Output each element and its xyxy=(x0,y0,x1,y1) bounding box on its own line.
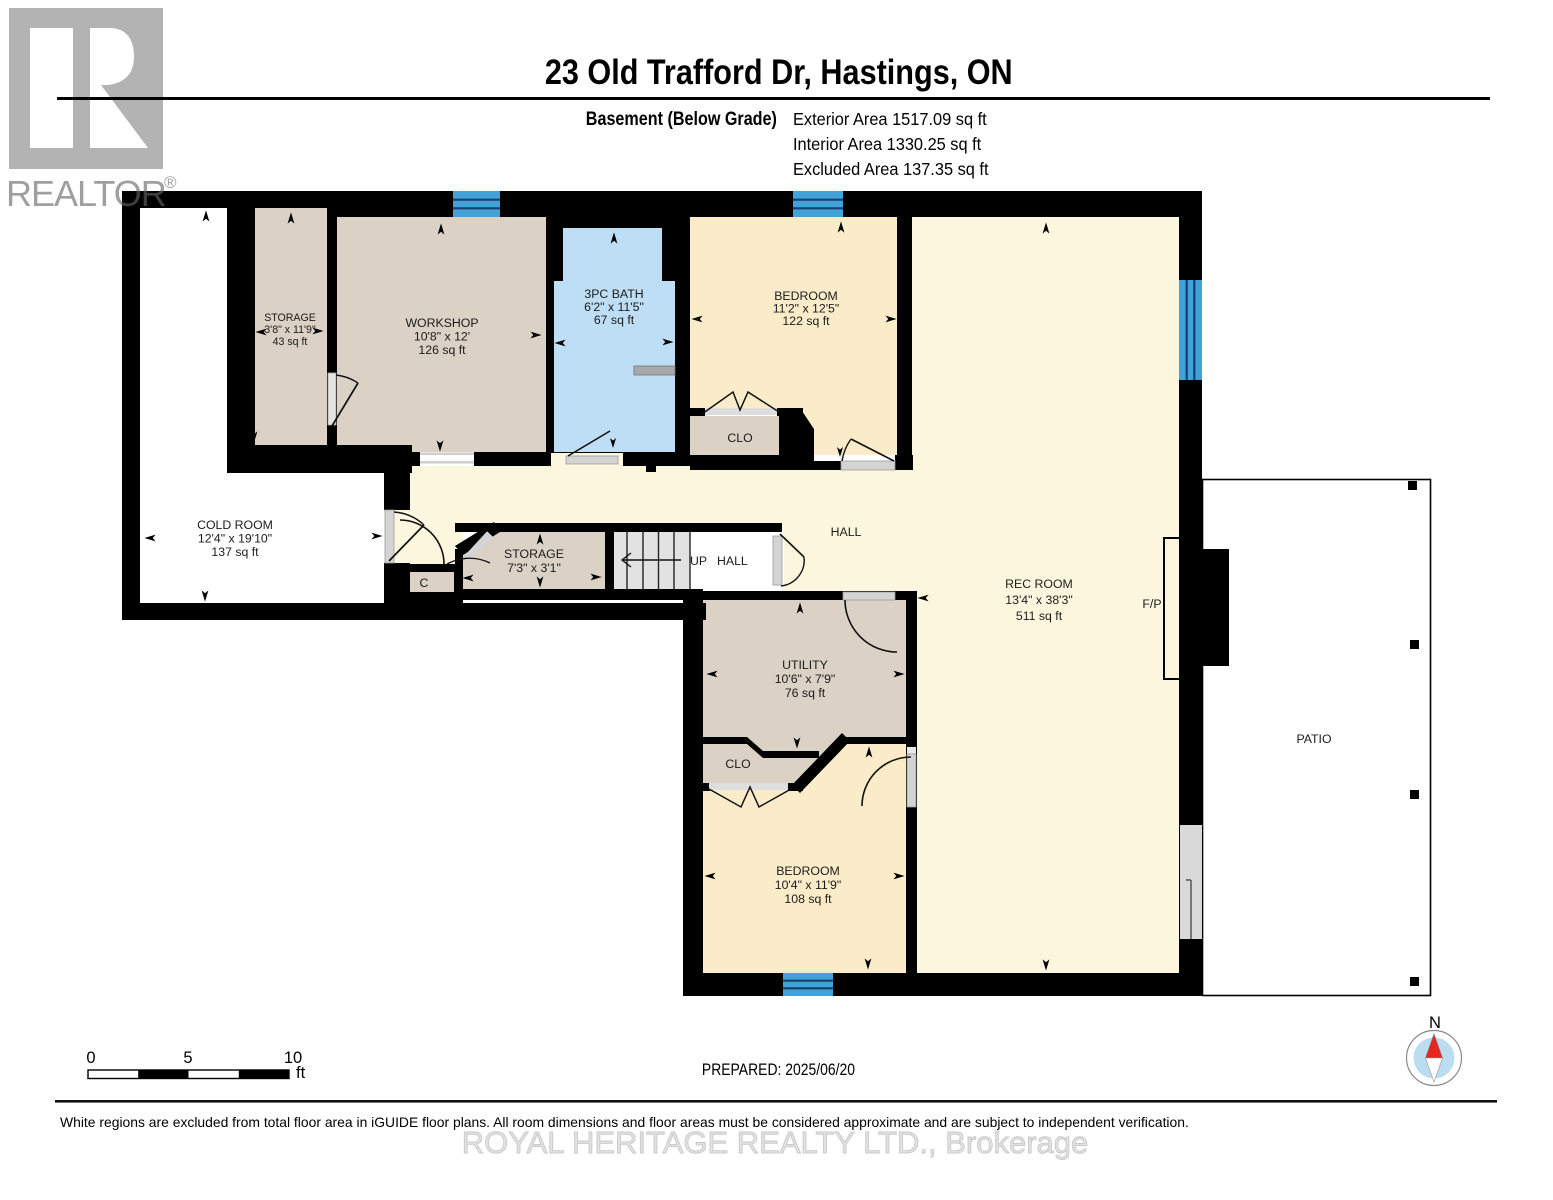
svg-text:3PC BATH: 3PC BATH xyxy=(584,287,643,301)
svg-text:UP: UP xyxy=(690,554,707,568)
svg-text:BEDROOM: BEDROOM xyxy=(776,864,840,878)
svg-text:PREPARED: 2025/06/20: PREPARED: 2025/06/20 xyxy=(702,1061,855,1080)
svg-text:N: N xyxy=(1429,1014,1441,1032)
svg-text:10'8" x 12': 10'8" x 12' xyxy=(414,330,470,344)
svg-text:WORKSHOP: WORKSHOP xyxy=(405,316,478,330)
svg-text:137 sq ft: 137 sq ft xyxy=(211,545,259,559)
svg-text:HALL: HALL xyxy=(717,554,748,568)
svg-text:STORAGE: STORAGE xyxy=(264,312,316,324)
svg-text:122 sq ft: 122 sq ft xyxy=(782,314,830,328)
svg-text:PATIO: PATIO xyxy=(1296,732,1331,746)
svg-text:®: ® xyxy=(164,173,177,192)
svg-text:CLO: CLO xyxy=(725,757,750,771)
svg-text:511 sq ft: 511 sq ft xyxy=(1016,609,1063,623)
svg-text:67 sq ft: 67 sq ft xyxy=(594,313,635,327)
svg-text:STORAGE: STORAGE xyxy=(504,547,564,561)
svg-text:0: 0 xyxy=(86,1049,95,1067)
svg-text:HALL: HALL xyxy=(831,525,862,539)
svg-text:COLD ROOM: COLD ROOM xyxy=(197,518,273,532)
svg-text:3'8" x 11'9": 3'8" x 11'9" xyxy=(264,324,316,336)
svg-text:Exterior Area 1517.09 sq ft: Exterior Area 1517.09 sq ft xyxy=(793,108,987,129)
svg-text:6'2" x 11'5": 6'2" x 11'5" xyxy=(584,300,644,314)
svg-text:5: 5 xyxy=(183,1049,192,1067)
svg-text:REALTOR: REALTOR xyxy=(6,173,166,214)
svg-text:76 sq ft: 76 sq ft xyxy=(785,686,826,700)
svg-text:43 sq ft: 43 sq ft xyxy=(273,336,308,348)
svg-text:REC ROOM: REC ROOM xyxy=(1005,577,1073,591)
svg-text:CLO: CLO xyxy=(727,431,752,445)
svg-text:126 sq ft: 126 sq ft xyxy=(418,343,466,357)
svg-text:F/P: F/P xyxy=(1142,597,1161,611)
svg-text:UTILITY: UTILITY xyxy=(782,658,828,672)
svg-text:Basement (Below Grade): Basement (Below Grade) xyxy=(586,108,777,130)
svg-text:12'4" x 19'10": 12'4" x 19'10" xyxy=(198,532,272,546)
svg-text:C: C xyxy=(420,576,429,590)
svg-text:108 sq ft: 108 sq ft xyxy=(784,892,832,906)
svg-text:ROYAL HERITAGE REALTY LTD., Br: ROYAL HERITAGE REALTY LTD., Brokerage xyxy=(462,1125,1089,1160)
svg-text:Excluded Area 137.35 sq ft: Excluded Area 137.35 sq ft xyxy=(793,158,989,179)
svg-text:23 Old Trafford Dr, Hastings,: 23 Old Trafford Dr, Hastings, ON xyxy=(545,52,1013,91)
svg-text:Interior Area 1330.25 sq ft: Interior Area 1330.25 sq ft xyxy=(793,133,981,154)
svg-text:10'6" x 7'9": 10'6" x 7'9" xyxy=(775,672,836,686)
svg-text:10'4" x 11'9": 10'4" x 11'9" xyxy=(775,878,842,892)
svg-text:ft: ft xyxy=(296,1064,306,1082)
svg-text:7'3" x 3'1": 7'3" x 3'1" xyxy=(507,561,561,575)
svg-text:13'4" x 38'3": 13'4" x 38'3" xyxy=(1005,593,1072,607)
